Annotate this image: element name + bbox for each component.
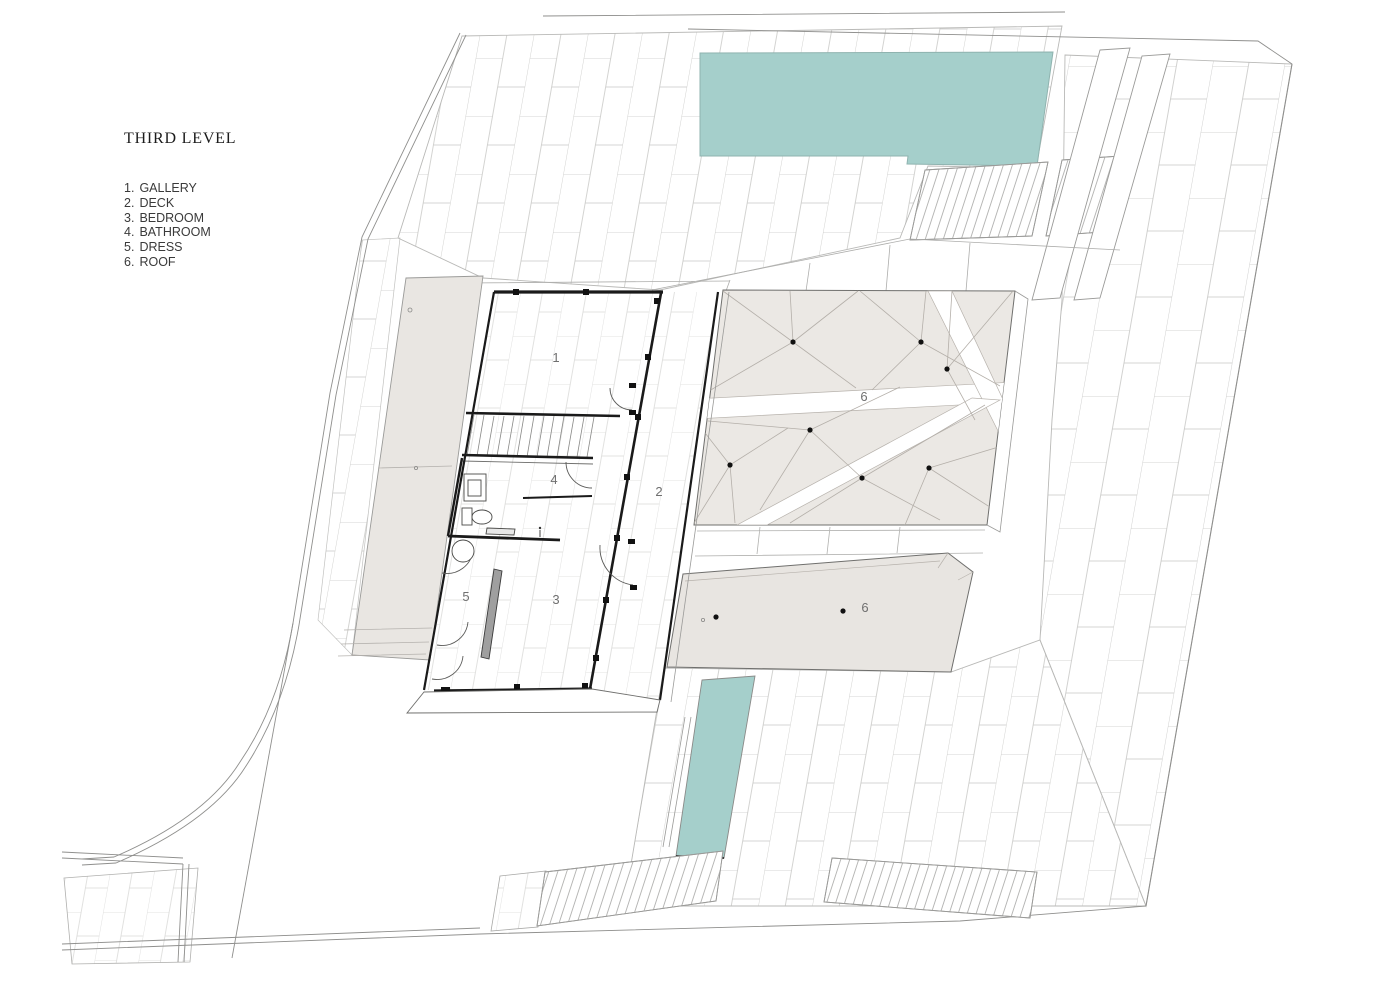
page-title: THIRD LEVEL <box>124 130 236 148</box>
legend-items: 1.GALLERY 2.DECK 3.BEDROOM 4.BATHROOM 5.… <box>124 181 236 270</box>
swimming-pool <box>700 52 1053 166</box>
label-bathroom: 4 <box>550 472 557 487</box>
label-roof-main: 6 <box>860 389 867 404</box>
legend-item-dress: 5.DRESS <box>124 240 236 255</box>
legend-item-deck: 2.DECK <box>124 196 236 211</box>
legend: THIRD LEVEL 1.GALLERY 2.DECK 3.BEDROOM 4… <box>124 130 236 270</box>
label-gallery: 1 <box>552 350 559 365</box>
roof-secondary <box>667 553 973 672</box>
label-deck: 2 <box>655 484 662 499</box>
label-bedroom: 3 <box>552 592 559 607</box>
label-roof-secondary: 6 <box>861 600 868 615</box>
toilet-bowl <box>472 510 492 524</box>
legend-item-roof: 6.ROOF <box>124 255 236 270</box>
legend-item-bedroom: 3.BEDROOM <box>124 211 236 226</box>
shower <box>452 540 474 562</box>
boundary-fork-line <box>232 623 293 958</box>
roof-secondary-slab <box>667 553 973 672</box>
legend-item-bathroom: 4.BATHROOM <box>124 225 236 240</box>
legend-item-gallery: 1.GALLERY <box>124 181 236 196</box>
floor-plan-canvas: 1 2 3 4 5 6 6 THIRD LEVEL 1.GALLERY 2.DE… <box>0 0 1390 983</box>
toilet-tank <box>462 508 472 525</box>
roof-main <box>694 290 1028 556</box>
label-dress: 5 <box>462 589 469 604</box>
roof-south-walkway <box>695 527 985 556</box>
bench <box>486 528 515 535</box>
